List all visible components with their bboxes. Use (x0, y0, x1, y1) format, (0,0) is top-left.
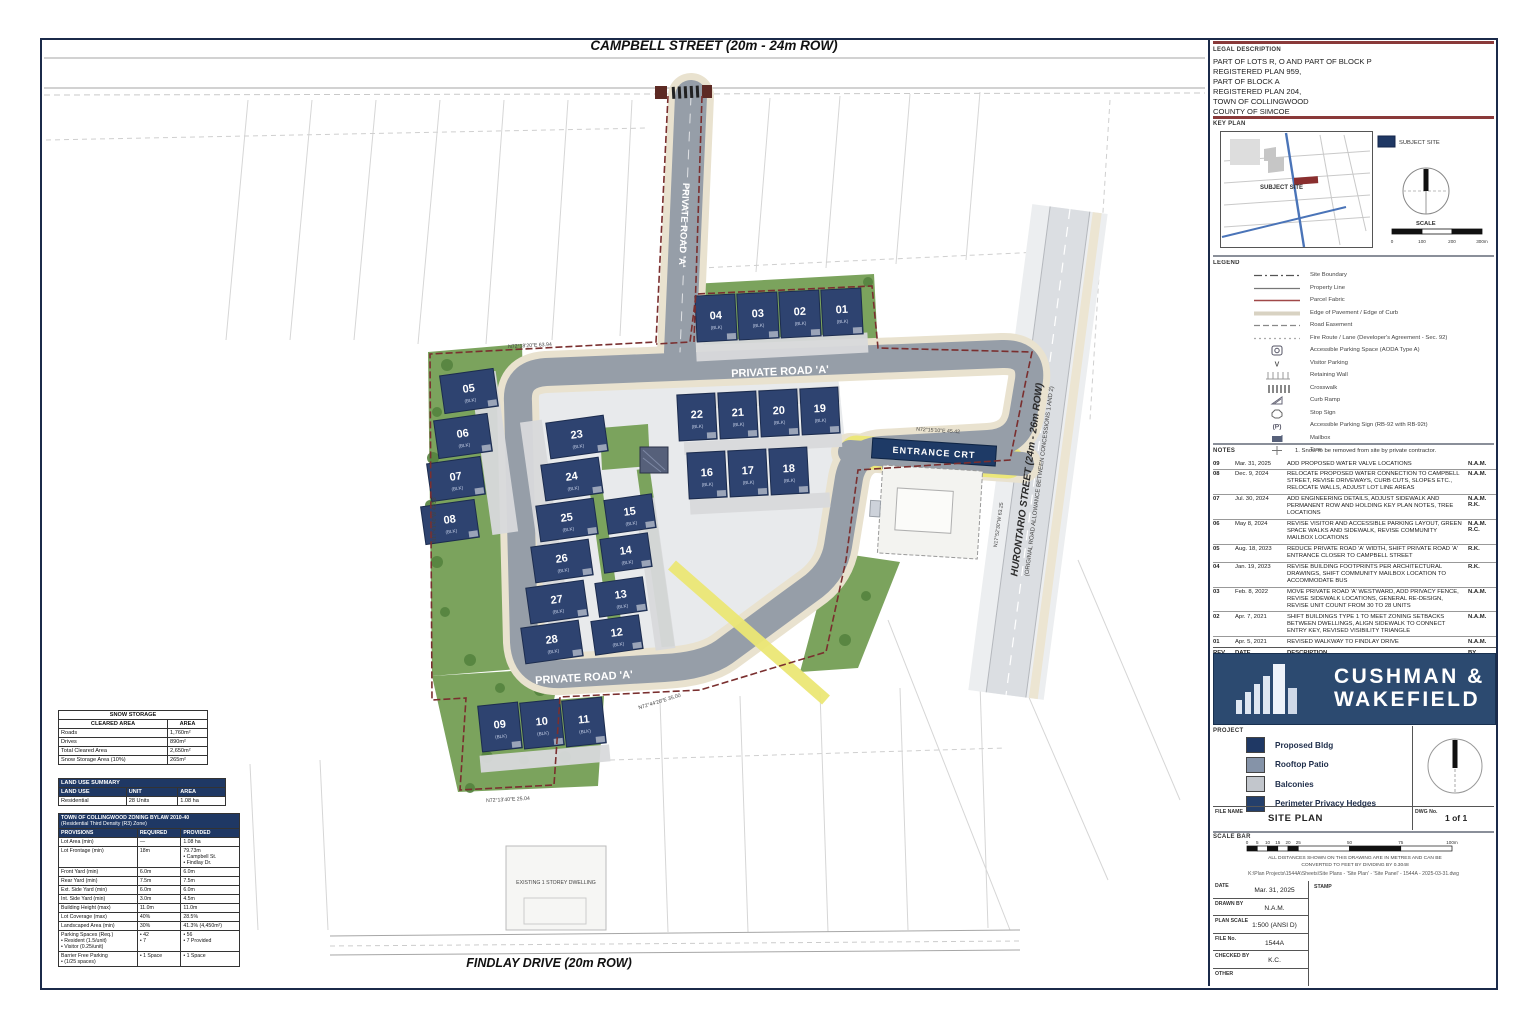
project-legend-item: Rooftop Patio (1246, 757, 1406, 773)
dimension-label: N72°18'20"E 63.94 (508, 342, 552, 350)
legend-item-label: Crosswalk (1304, 385, 1337, 391)
unit-number: 07 (449, 470, 463, 484)
unit-sub-label: (BLK) (701, 482, 713, 488)
parking-sign-icon: (P) (1252, 420, 1304, 431)
legend-item-label: Stop Sign (1304, 410, 1336, 416)
unit-number: 18 (782, 463, 795, 476)
unit-block: 26(BLK) (531, 539, 593, 583)
cad-path: K:\Plan Projects\1544A\Sheets\Site Plans… (1213, 871, 1494, 877)
unit-number: 01 (835, 304, 848, 317)
solid-line-icon (1252, 283, 1304, 294)
title-block-row-label: DATE (1215, 883, 1229, 889)
unit-block: 11(BLK) (562, 697, 607, 747)
unit-sub-label: (BLK) (783, 478, 795, 484)
legend-item: Stop Sign (1252, 408, 1496, 419)
unit-block: 24(BLK) (541, 457, 603, 501)
svg-text:200: 200 (1448, 239, 1456, 244)
revision-row: 08Dec. 9, 2024RELOCATE PROPOSED WATER CO… (1213, 469, 1496, 494)
key-plan: SUBJECT SITE SUBJECT SITE SCALE 01002003… (1220, 131, 1496, 249)
project-item-label: Proposed Bldg (1275, 741, 1333, 750)
unit-block: 16(BLK) (687, 451, 727, 499)
red-line-icon (1252, 295, 1304, 306)
stop-sign-icon (1252, 408, 1304, 419)
unit-number: 09 (493, 718, 506, 731)
unit-sub-label: (BLK) (794, 321, 806, 327)
legend-heading: LEGEND (1213, 260, 1240, 266)
logo-line2: WAKEFIELD (1334, 689, 1485, 712)
unit-block: 20(BLK) (759, 389, 799, 437)
project-legend-item: Proposed Bldg (1246, 737, 1406, 753)
unit-sub-label: (BLK) (752, 323, 764, 329)
unit-sub-label: (BLK) (836, 319, 848, 325)
dimension-label: N17°41'40"W 42.28 (432, 497, 438, 542)
revision-row: 05Aug. 18, 2023REDUCE PRIVATE ROAD 'A' W… (1213, 544, 1496, 562)
unit-number: 26 (555, 552, 569, 566)
unit-number: 04 (709, 310, 723, 323)
project-north-arrow (1420, 730, 1490, 802)
unit-number: 22 (690, 409, 703, 422)
unit-number: 06 (456, 427, 470, 441)
legal-description-line: PART OF BLOCK A (1213, 77, 1494, 87)
revision-row: 07Jul. 30, 2024ADD ENGINEERING DETAILS, … (1213, 494, 1496, 519)
svg-text:50: 50 (1347, 840, 1353, 845)
title-block-row-label: DRAWN BY (1215, 901, 1243, 907)
dashed-line-icon (1252, 320, 1304, 331)
unit-block: 21(BLK) (718, 391, 758, 439)
svg-text:5: 5 (1256, 840, 1259, 845)
svg-text:0: 0 (1391, 239, 1394, 244)
mailbox-icon (1252, 433, 1304, 444)
file-name-label: FILE NAME (1215, 809, 1243, 815)
existing-dwelling-parcel (506, 846, 606, 930)
file-name-row: FILE NAME SITE PLAN DWG No. 1 of 1 (1213, 806, 1494, 831)
legend-item: Retaining Wall (1252, 370, 1496, 381)
legend-item-label: Site Boundary (1304, 272, 1347, 278)
dwg-no-value: 1 of 1 (1445, 813, 1467, 823)
project-color-chip (1246, 776, 1265, 792)
legend-item: Crosswalk (1252, 383, 1496, 394)
unit-number: 03 (751, 308, 764, 321)
unit-number: 19 (813, 403, 826, 416)
snow-storage-table: SNOW STORAGECLEARED AREAAREARoads1,760m²… (58, 710, 208, 765)
legend-item: Road Easement (1252, 320, 1496, 331)
unit-number: 10 (535, 715, 548, 728)
curb-ramp-icon (1252, 395, 1304, 406)
legend-item-label: Road Easement (1304, 322, 1352, 328)
legend-item-label: Parcel Fabric (1304, 297, 1345, 303)
unit-block: 19(BLK) (800, 387, 840, 435)
legend-item-label: Edge of Pavement / Edge of Curb (1304, 310, 1398, 316)
key-plan-site-label: SUBJECT SITE (1260, 185, 1303, 191)
mail-kiosk (640, 447, 668, 473)
cushman-wakefield-logo: CUSHMAN & WAKEFIELD (1213, 653, 1496, 725)
revision-row: 02Apr. 7, 2021SHIFT BUILDINGS TYPE 1 TO … (1213, 611, 1496, 636)
title-block-row: FILE No.1544A (1213, 933, 1308, 951)
title-block-row: CHECKED BYK.C. (1213, 950, 1308, 968)
campbell-street-band (44, 58, 1205, 95)
stamp-label: STAMP (1314, 884, 1332, 890)
svg-text:20: 20 (1285, 840, 1291, 845)
legend-item-label: Accessible Parking Space (AODA Type A) (1304, 347, 1420, 353)
title-block-row-value: 1:500 (ANSI D) (1243, 922, 1306, 929)
svg-text:(P): (P) (1273, 424, 1282, 431)
revision-table: 09Mar. 31, 2025ADD PROPOSED WATER VALVE … (1213, 459, 1496, 664)
divider-bar (1213, 831, 1494, 833)
unit-block: 04(BLK) (695, 294, 737, 342)
unit-block: 09(BLK) (478, 702, 523, 752)
title-block-info: DATEMar. 31, 2025DRAWN BYN.A.M.PLAN SCAL… (1213, 881, 1494, 986)
svg-text:10: 10 (1265, 840, 1271, 845)
legal-description-line: REGISTERED PLAN 959, (1213, 67, 1494, 77)
key-plan-heading: KEY PLAN (1213, 121, 1246, 127)
legal-description-line: REGISTERED PLAN 204, (1213, 87, 1494, 97)
dash-dot-line-icon (1252, 270, 1304, 281)
legal-heading: LEGAL DESCRIPTION (1213, 47, 1281, 53)
unit-block: 14(BLK) (600, 533, 652, 573)
unit-number: 21 (731, 407, 744, 420)
unit-block: 05(BLK) (440, 368, 499, 413)
unit-sub-label: (BLK) (732, 422, 744, 428)
legend-item-label: Mailbox (1304, 435, 1330, 441)
legend-item: Parcel Fabric (1252, 295, 1496, 306)
unit-block: 12(BLK) (591, 615, 643, 655)
unit-number: 02 (793, 306, 806, 319)
svg-text:25: 25 (1296, 840, 1302, 845)
site-plan-sheet: ENTRANCE CRT 04(BLK)03(BLK)02(BLK)01(BLK… (0, 0, 1536, 1024)
legend-item: Curb Ramp (1252, 395, 1496, 406)
land-use-table: LAND USE SUMMARYLAND USEUNITAREAResident… (58, 778, 226, 806)
title-block-row: PLAN SCALE1:500 (ANSI D) (1213, 915, 1308, 933)
dimension-label: N72°44'20"E 35.00 (638, 693, 682, 712)
scale-note-2: CONVERTED TO FEET BY DIVIDING BY 0.3048 (1222, 863, 1488, 869)
findlay-drive-label: FINDLAY DRIVE (20m ROW) (466, 956, 632, 970)
project-color-chip (1246, 757, 1265, 773)
legend-item-label: Accessible Parking Sign (RB-92 with RB-9… (1304, 422, 1428, 428)
revision-row: 03Feb. 8, 2022MOVE PRIVATE ROAD 'A' WEST… (1213, 587, 1496, 612)
unit-block: 17(BLK) (728, 449, 768, 497)
unit-block: 08(BLK) (421, 499, 480, 544)
unit-number: 27 (550, 593, 564, 607)
scale-bar: 05101520255075100m (1245, 838, 1465, 854)
divider-bar (1213, 41, 1494, 44)
notes-heading: NOTES (1213, 448, 1235, 454)
unit-number: 11 (577, 713, 590, 726)
legend-item: VVisitor Parking (1252, 358, 1496, 369)
svg-text:0: 0 (1246, 840, 1249, 845)
revision-row: 04Jan. 19, 2023REVISE BUILDING FOOTPRINT… (1213, 562, 1496, 587)
unit-number: 13 (614, 588, 628, 602)
revision-row: 09Mar. 31, 2025ADD PROPOSED WATER VALVE … (1213, 459, 1496, 469)
legend-item: Edge of Pavement / Edge of Curb (1252, 308, 1496, 319)
legend-item-label: Property Line (1304, 285, 1345, 291)
project-item-label: Balconies (1275, 780, 1314, 789)
crosswalk-icon (1252, 383, 1304, 394)
unit-number: 15 (623, 505, 637, 519)
unit-block: 07(BLK) (427, 456, 486, 501)
title-block-row: DATEMar. 31, 2025 (1213, 881, 1308, 898)
revision-row: 01Apr. 5, 2021REVISED WALKWAY TO FINDLAY… (1213, 636, 1496, 647)
unit-number: 23 (570, 428, 584, 442)
project-items: Proposed BldgRooftop PatioBalconiesPerim… (1246, 737, 1406, 815)
findlay-street-band (330, 930, 1020, 955)
retaining-wall-icon (1252, 370, 1304, 381)
title-block-row: OTHER (1213, 968, 1308, 986)
title-block-row: DRAWN BYN.A.M. (1213, 898, 1308, 916)
key-plan-scale-label: SCALE (1416, 221, 1436, 227)
scale-note-1: ALL DISTANCES SHOWN ON THIS DRAWING ARE … (1222, 856, 1488, 862)
legend-item: (P)Accessible Parking Sign (RB-92 with R… (1252, 420, 1496, 431)
unit-block: 03(BLK) (737, 292, 779, 340)
svg-text:100: 100 (1418, 239, 1426, 244)
dimension-label: EXISTING 1 STOREY DWELLING (516, 880, 596, 886)
unit-sub-label: (BLK) (742, 480, 754, 486)
file-name-value: SITE PLAN (1268, 813, 1323, 824)
pale-line-icon (1252, 308, 1304, 319)
unit-block: 15(BLK) (604, 494, 656, 534)
legend-item-label: Retaining Wall (1304, 372, 1348, 378)
project-legend-item: Balconies (1246, 776, 1406, 792)
logo-bars-icon (1232, 660, 1324, 718)
unit-number: 16 (700, 467, 713, 480)
unit-block: 02(BLK) (779, 290, 821, 338)
unit-number: 28 (545, 633, 559, 647)
unit-block: 13(BLK) (595, 577, 647, 617)
unit-block: 28(BLK) (521, 620, 583, 664)
unit-block: 18(BLK) (769, 447, 809, 495)
divider-bar (1213, 443, 1494, 445)
legend-list: Site BoundaryProperty LineParcel FabricE… (1252, 270, 1496, 458)
logo-line1: CUSHMAN & (1334, 666, 1485, 689)
unit-block: 22(BLK) (677, 393, 717, 441)
title-block-row-value: Mar. 31, 2025 (1243, 887, 1306, 894)
project-color-chip (1246, 737, 1265, 753)
unit-number: 20 (772, 405, 785, 418)
dwg-no-label: DWG No. (1415, 809, 1437, 815)
svg-text:75: 75 (1398, 840, 1404, 845)
unit-number: 17 (741, 465, 754, 478)
legend-item: Property Line (1252, 283, 1496, 294)
subject-site-chip (1378, 136, 1395, 147)
unit-block: 23(BLK) (546, 415, 608, 459)
legend-item: Fire Route / Lane (Developer's Agreement… (1252, 333, 1496, 344)
project-item-label: Rooftop Patio (1275, 760, 1329, 769)
accessible-space-icon (1252, 345, 1304, 356)
panel-divider (1208, 38, 1210, 986)
unit-sub-label: (BLK) (814, 418, 826, 424)
title-block-row-value: N.A.M. (1243, 905, 1306, 912)
dotted-line-icon (1252, 333, 1304, 344)
title-block-row-value: K.C. (1243, 957, 1306, 964)
dimension-label: N72°13'40"E 25.04 (486, 796, 530, 804)
title-block-row-label: FILE No. (1215, 936, 1236, 942)
legal-description-line: PART OF LOTS R, O AND PART OF BLOCK P (1213, 57, 1494, 67)
legend-item-label: Curb Ramp (1304, 397, 1340, 403)
unit-sub-label: (BLK) (710, 325, 722, 331)
notes-text: 1. Snow to be removed from site by priva… (1295, 448, 1495, 454)
legend-item: Site Boundary (1252, 270, 1496, 281)
legal-description-line: TOWN OF COLLINGWOOD (1213, 97, 1494, 107)
svg-text:300m: 300m (1476, 239, 1488, 244)
legal-description: PART OF LOTS R, O AND PART OF BLOCK PREG… (1213, 57, 1494, 117)
svg-text:V: V (1275, 361, 1280, 368)
unit-sub-label: (BLK) (773, 420, 785, 426)
subject-site-chip-label: SUBJECT SITE (1399, 140, 1440, 146)
v-marker-icon: V (1252, 358, 1304, 369)
title-block-row-value: 1544A (1243, 940, 1306, 947)
amenity-building (867, 464, 982, 559)
zoning-table: TOWN OF COLLINGWOOD ZONING BYLAW 2010-40… (58, 813, 240, 967)
unit-sub-label: (BLK) (691, 424, 703, 430)
unit-number: 12 (610, 626, 624, 640)
unit-block: 27(BLK) (526, 580, 588, 624)
title-block-row-label: OTHER (1215, 971, 1233, 977)
legend-item: Accessible Parking Space (AODA Type A) (1252, 345, 1496, 356)
legend-item: Mailbox (1252, 433, 1496, 444)
legend-item-label: Fire Route / Lane (Developer's Agreement… (1304, 335, 1447, 341)
divider-bar (1213, 255, 1494, 257)
unit-number: 25 (560, 511, 574, 525)
revision-row: 06May 8, 2024REVISE VISITOR AND ACCESSIB… (1213, 519, 1496, 544)
divider-bar (1213, 116, 1494, 119)
svg-text:15: 15 (1275, 840, 1281, 845)
campbell-street-label: CAMPBELL STREET (20m - 24m ROW) (590, 40, 838, 53)
unit-number: 05 (462, 382, 476, 396)
svg-text:100m: 100m (1446, 840, 1458, 845)
unit-number: 08 (443, 513, 457, 527)
legend-item-label: Visitor Parking (1304, 360, 1348, 366)
unit-block: 06(BLK) (434, 413, 493, 458)
project-heading: PROJECT (1213, 728, 1243, 734)
unit-block: 25(BLK) (536, 498, 598, 542)
unit-block: 01(BLK) (821, 288, 863, 336)
